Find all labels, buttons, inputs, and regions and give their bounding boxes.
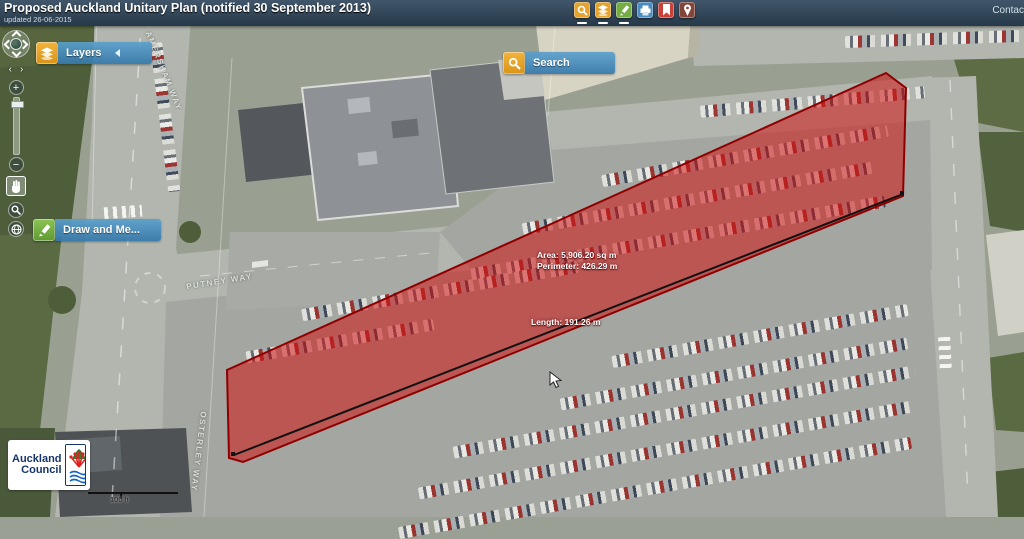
scale-label: 100 ft	[110, 495, 129, 504]
layers-panel-tab[interactable]: Layers	[36, 42, 152, 64]
pencil-icon	[619, 5, 630, 16]
draw-measure-panel-tab[interactable]: Draw and Me...	[33, 219, 161, 241]
layers-tool-button[interactable]	[595, 2, 611, 18]
search-icon	[503, 52, 525, 74]
map-viewport[interactable]: PUTNEY WAY OSTERLEY WAY AMERSHAM WAY Are…	[0, 0, 1024, 517]
full-extent-button[interactable]	[8, 221, 24, 237]
updated-date: updated 26-06-2015	[4, 15, 72, 24]
print-tool-button[interactable]	[637, 2, 653, 18]
hand-icon	[10, 180, 22, 193]
layers-tab-label: Layers	[66, 47, 101, 59]
perimeter-label: Perimeter: 426.29 m	[537, 261, 617, 272]
rotate-left-button[interactable]: ‹	[9, 64, 12, 75]
crosswalk	[938, 337, 952, 372]
zoom-box-button[interactable]	[8, 202, 24, 218]
map-navigation-control: ‹ › + −	[2, 30, 30, 237]
layers-icon	[36, 42, 58, 64]
pencil-icon	[33, 219, 55, 241]
search-tab-label: Search	[533, 57, 570, 69]
pan-south-icon	[12, 48, 22, 58]
search-tool-button[interactable]	[574, 2, 590, 18]
logo-line2: Council	[12, 465, 62, 476]
toolbar	[574, 2, 695, 18]
zoom-out-button[interactable]: −	[9, 157, 24, 172]
draw-measure-tool-button[interactable]	[616, 2, 632, 18]
draw-tab-label: Draw and Me...	[63, 224, 140, 236]
header-bar: Proposed Auckland Unitary Plan (notified…	[0, 0, 1024, 26]
zoom-slider-handle[interactable]	[11, 101, 24, 108]
printer-icon	[640, 5, 651, 16]
pohutukawa-emblem-icon	[65, 444, 86, 486]
collapse-arrow-icon[interactable]	[115, 49, 120, 57]
app-title: Proposed Auckland Unitary Plan (notified…	[4, 1, 371, 15]
zoom-slider[interactable]	[13, 97, 20, 155]
scale-bar: 100 ft	[88, 492, 178, 494]
locate-tool-button[interactable]	[679, 2, 695, 18]
rotate-right-button[interactable]: ›	[20, 64, 23, 75]
globe-icon	[11, 224, 22, 235]
zoom-in-button[interactable]: +	[9, 80, 24, 95]
mouse-cursor	[549, 371, 563, 389]
pan-compass-control[interactable]	[2, 30, 30, 58]
contact-link[interactable]: Contac	[992, 5, 1024, 16]
length-label: Length: 191.26 m	[531, 317, 600, 328]
layers-icon	[597, 5, 609, 16]
search-icon	[577, 5, 588, 16]
search-panel-tab[interactable]: Search	[503, 52, 615, 74]
area-label: Area: 5,906.20 sq m	[537, 250, 617, 261]
bookmarks-tool-button[interactable]	[658, 2, 674, 18]
bookmark-icon	[662, 4, 671, 16]
map-pin-icon	[683, 4, 692, 16]
pan-tool-button[interactable]	[6, 176, 26, 196]
auckland-council-logo: Auckland Council	[8, 440, 90, 490]
zoom-box-icon	[11, 205, 21, 215]
